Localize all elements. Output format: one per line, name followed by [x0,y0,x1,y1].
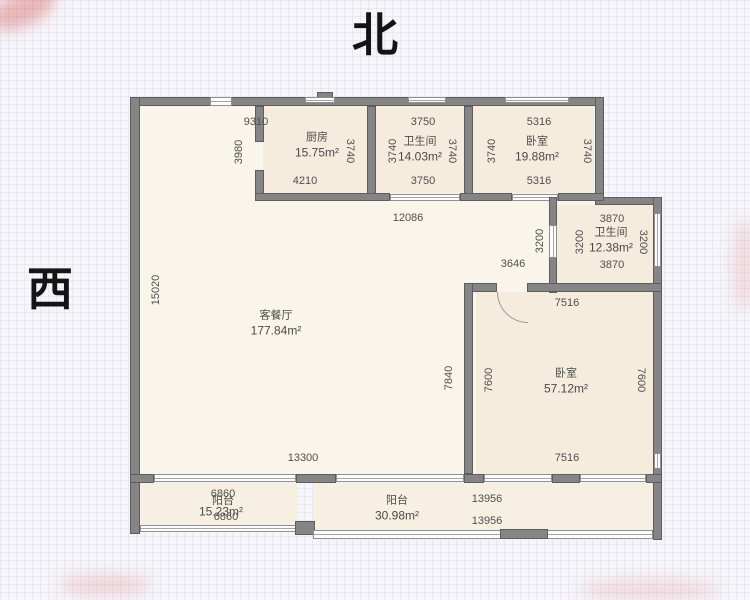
room-area: 57.12m² [544,381,588,396]
dim-3750: 3750 [411,116,435,128]
room-name: 阳台 [375,495,419,509]
room-name: 客餐厅 [251,310,302,324]
window [336,474,464,482]
smudge-mark [733,220,750,310]
dim-5316: 5316 [527,116,551,128]
dim-3740: 3740 [486,139,498,163]
room-area: 15.75m² [295,145,339,160]
dim-15020: 15020 [150,275,162,306]
room-area: 19.88m² [515,149,559,164]
window [305,97,335,103]
room-area: 177.84m² [251,323,302,338]
dim-3740: 3740 [387,139,399,163]
smudge-mark [580,580,720,600]
dim-7516: 7516 [555,452,579,464]
balcony-rail [140,525,297,532]
dim-3646: 3646 [501,258,525,270]
dim-7600: 7600 [635,368,647,392]
room-name: 卧室 [544,368,588,382]
room-label-balcony-right: 阳台 30.98m² [375,495,419,524]
smudge-mark [0,0,62,39]
room-label-bath-top: 卫生间 14.03m² [398,136,442,165]
balcony-rail [313,530,653,539]
dim-3200: 3200 [574,230,586,254]
wall [595,97,604,204]
smudge-mark [60,574,150,596]
wall [646,474,662,483]
window [154,474,296,482]
wall [464,474,484,483]
room-area: 12.38m² [589,240,633,255]
wall [558,193,604,201]
wall [527,283,662,292]
wall [595,197,662,205]
dim-12086: 12086 [393,212,424,224]
dim-3870: 3870 [600,213,624,225]
wall [552,474,580,483]
dim-3740: 3740 [446,139,458,163]
dim-13956: 13956 [472,493,503,505]
door-opening [549,225,557,258]
dim-3200: 3200 [637,230,649,254]
dim-5316: 5316 [527,175,551,187]
room-area: 14.03m² [398,149,442,164]
dim-4210: 4210 [293,175,317,187]
dim-3750: 3750 [411,175,435,187]
wall [295,521,315,535]
compass-north-label: 北 [352,12,398,58]
room-name: 卫生间 [398,136,442,150]
room-name: 卧室 [515,136,559,150]
dim-6860: 6860 [211,488,235,500]
window [654,213,661,267]
room-name: 卫生间 [589,227,633,241]
window [505,97,569,103]
dim-3740: 3740 [581,139,593,163]
wall [367,106,376,201]
wall [130,97,140,534]
compass-west-label: 西 [27,266,73,312]
floor-plan: 北 西 [0,0,750,600]
wall [500,529,548,539]
window [654,453,661,469]
room-area: 30.98m² [375,508,419,523]
dim-7600: 7600 [483,368,495,392]
dim-6860: 6860 [214,511,238,523]
dim-7840: 7840 [443,366,455,390]
window [390,194,460,201]
wall [296,474,336,483]
wall [464,283,473,474]
room-label-living: 客餐厅 177.84m² [251,310,302,339]
room-label-bath-mid: 卫生间 12.38m² [589,227,633,256]
window [210,97,232,106]
room-label-kitchen: 厨房 15.75m² [295,132,339,161]
wall [464,106,473,201]
room-label-bedroom-top: 卧室 19.88m² [515,136,559,165]
dim-9310: 9310 [244,116,268,128]
room-name: 厨房 [295,132,339,146]
dim-7516: 7516 [555,297,579,309]
dim-3200: 3200 [534,229,546,253]
dim-3980: 3980 [233,140,245,164]
window [484,474,552,482]
wall [130,474,154,483]
dim-13300: 13300 [288,452,319,464]
wall [255,193,390,201]
wall [460,193,512,201]
dim-13956: 13956 [472,515,503,527]
window [580,474,646,482]
window [408,97,446,103]
dim-3740: 3740 [344,139,356,163]
dim-3870: 3870 [600,259,624,271]
room-label-bedroom-main: 卧室 57.12m² [544,368,588,397]
